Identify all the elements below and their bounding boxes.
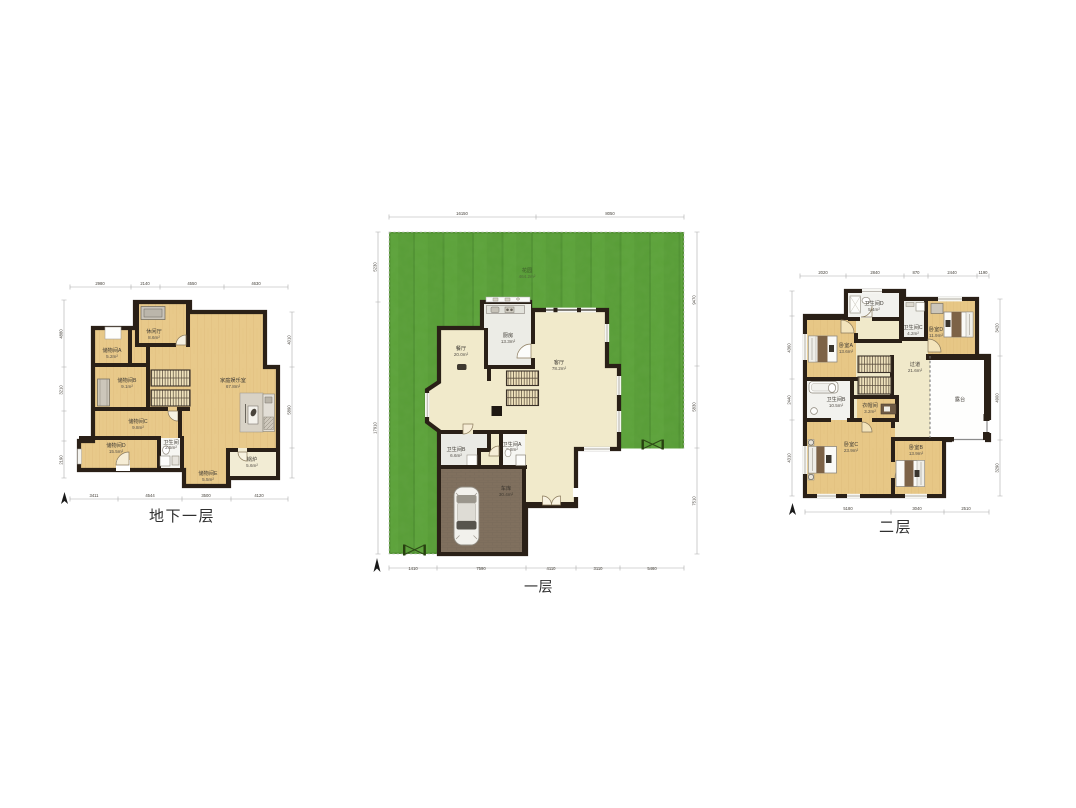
svg-text:9.1m²: 9.1m²	[121, 384, 133, 389]
svg-text:卧室A: 卧室A	[839, 341, 853, 349]
svg-text:卫生间C: 卫生间C	[903, 323, 923, 331]
svg-text:露台: 露台	[955, 395, 965, 403]
svg-text:10.5m²: 10.5m²	[829, 403, 844, 408]
svg-text:13.3m²: 13.3m²	[501, 339, 516, 344]
svg-text:卫生间D: 卫生间D	[864, 299, 884, 307]
svg-text:4110: 4110	[546, 566, 556, 571]
svg-text:3411: 3411	[89, 493, 99, 498]
svg-text:厨房: 厨房	[503, 331, 513, 339]
svg-text:衣帽间: 衣帽间	[862, 401, 878, 409]
svg-text:1190: 1190	[978, 270, 988, 275]
svg-text:5890: 5890	[287, 405, 292, 415]
svg-text:过道: 过道	[910, 360, 920, 368]
svg-text:卫生间B: 卫生间B	[826, 395, 846, 403]
svg-text:4010: 4010	[287, 335, 292, 345]
svg-text:4880: 4880	[59, 329, 64, 339]
svg-text:卧室D: 卧室D	[929, 325, 943, 333]
svg-text:4550: 4550	[187, 281, 197, 286]
svg-text:7590: 7590	[476, 566, 486, 571]
svg-text:8050: 8050	[605, 211, 615, 216]
svg-text:9470: 9470	[692, 295, 697, 305]
svg-text:3420: 3420	[995, 323, 1000, 333]
svg-text:3.2m²: 3.2m²	[864, 409, 876, 414]
svg-text:5.4m²: 5.4m²	[868, 307, 880, 312]
svg-text:储物间D: 储物间D	[106, 441, 126, 449]
svg-text:卫生间B: 卫生间B	[446, 445, 466, 453]
svg-text:20.0m²: 20.0m²	[454, 352, 469, 357]
svg-text:5460: 5460	[647, 566, 657, 571]
svg-text:9.8m²: 9.8m²	[132, 425, 144, 430]
svg-text:4.2m²: 4.2m²	[907, 331, 919, 336]
svg-text:2140: 2140	[140, 281, 150, 286]
svg-text:3210: 3210	[59, 385, 64, 395]
svg-text:21.6m²: 21.6m²	[908, 368, 923, 373]
svg-text:5830: 5830	[692, 402, 697, 412]
svg-text:2440: 2440	[947, 270, 957, 275]
svg-text:4360: 4360	[787, 343, 792, 353]
svg-text:休闲厅: 休闲厅	[146, 327, 162, 335]
svg-text:8.6m²: 8.6m²	[148, 335, 160, 340]
svg-text:一层: 一层	[524, 579, 553, 595]
svg-text:5230: 5230	[373, 262, 378, 272]
svg-text:5180: 5180	[843, 506, 853, 511]
svg-text:17910: 17910	[373, 422, 378, 434]
svg-text:2190: 2190	[59, 455, 64, 465]
svg-text:4900: 4900	[995, 393, 1000, 403]
svg-text:870: 870	[913, 270, 921, 275]
svg-text:锅炉: 锅炉	[247, 455, 257, 463]
svg-text:二层: 二层	[879, 519, 912, 536]
svg-text:4544: 4544	[145, 493, 155, 498]
svg-text:6.6m²: 6.6m²	[450, 453, 462, 458]
svg-text:2510: 2510	[961, 506, 971, 511]
svg-text:储物间E: 储物间E	[198, 469, 218, 477]
svg-text:储物间C: 储物间C	[128, 417, 148, 425]
svg-text:7510: 7510	[692, 496, 697, 506]
svg-text:15.5m²: 15.5m²	[109, 449, 124, 454]
svg-text:卧室B: 卧室B	[909, 443, 923, 451]
svg-text:2840: 2840	[870, 270, 880, 275]
svg-text:3500: 3500	[201, 493, 211, 498]
svg-text:2020: 2020	[818, 270, 828, 275]
svg-text:餐厅: 餐厅	[456, 344, 466, 352]
svg-text:13.6m²: 13.6m²	[839, 349, 854, 354]
svg-text:2.5m²: 2.5m²	[165, 445, 177, 450]
svg-text:4630: 4630	[251, 281, 261, 286]
svg-text:1410: 1410	[408, 566, 418, 571]
svg-text:客厅: 客厅	[554, 358, 564, 366]
svg-text:储物间B: 储物间B	[117, 376, 137, 384]
svg-text:3040: 3040	[912, 506, 922, 511]
svg-text:卧室C: 卧室C	[844, 440, 858, 448]
svg-text:23.9m²: 23.9m²	[844, 448, 859, 453]
svg-text:储物间A: 储物间A	[102, 346, 122, 354]
svg-text:4120: 4120	[254, 493, 264, 498]
svg-text:11.9m²: 11.9m²	[929, 333, 943, 338]
svg-text:464.2m²: 464.2m²	[519, 274, 536, 279]
svg-text:2980: 2980	[95, 281, 105, 286]
svg-text:16150: 16150	[456, 211, 468, 216]
svg-text:5.2m²: 5.2m²	[106, 354, 118, 359]
svg-text:78.2m²: 78.2m²	[552, 366, 567, 371]
svg-text:家庭娱乐室: 家庭娱乐室	[220, 376, 246, 384]
svg-text:花园: 花园	[522, 266, 532, 274]
svg-text:车库: 车库	[501, 484, 511, 492]
svg-text:3110: 3110	[593, 566, 603, 571]
svg-text:30.4m²: 30.4m²	[499, 492, 514, 497]
svg-text:67.8m²: 67.8m²	[226, 384, 241, 389]
svg-text:13.9m²: 13.9m²	[909, 451, 924, 456]
svg-text:地下一层: 地下一层	[149, 508, 215, 525]
svg-text:5.6m²: 5.6m²	[246, 463, 258, 468]
svg-text:2440: 2440	[787, 395, 792, 405]
svg-text:4310: 4310	[787, 453, 792, 463]
svg-text:3290: 3290	[995, 463, 1000, 473]
svg-text:5.5m²: 5.5m²	[202, 477, 214, 482]
